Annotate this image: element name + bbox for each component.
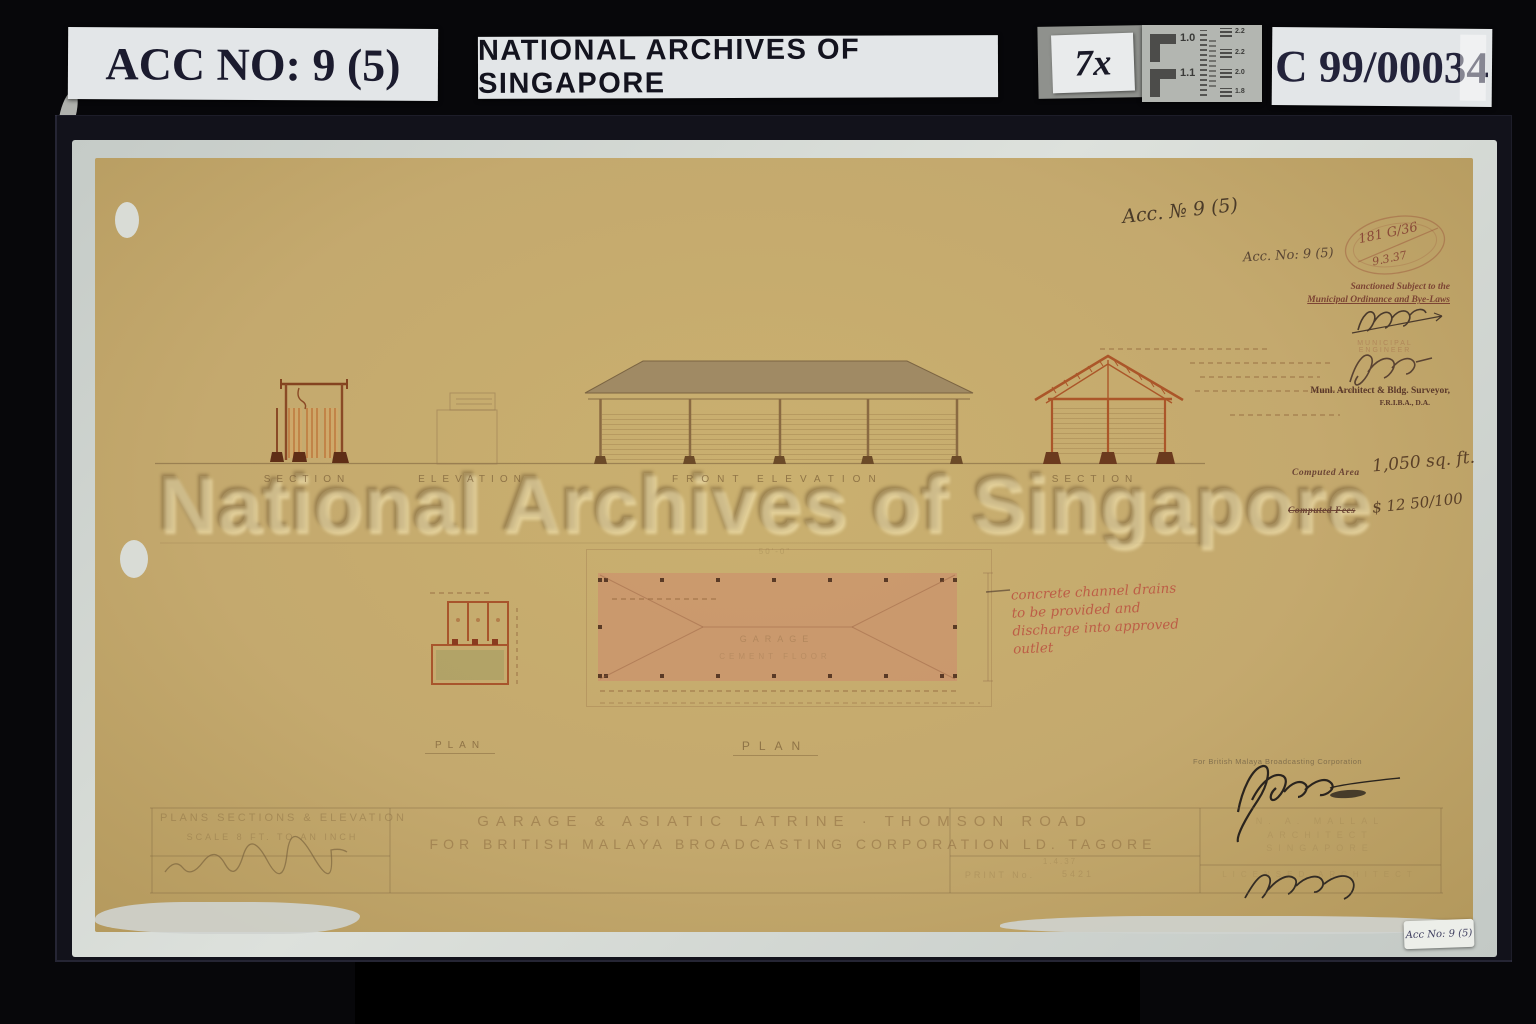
garage-section-linework [1035, 356, 1183, 464]
titleblock-print-number: 5421 [1048, 869, 1108, 879]
titleblock-date: 1.4.37 [1020, 857, 1100, 866]
garage-elevation-linework [585, 361, 973, 464]
computed-fees-label: Computed Fees [1288, 506, 1355, 516]
titleblock-drawing-type: PLANS SECTIONS & ELEVATION [160, 812, 385, 824]
surveyor-title: Munl. Architect & Bldg. Surveyor, [1280, 386, 1450, 396]
label-plan-large: PLAN [733, 739, 818, 756]
label-plan-small: PLAN [425, 740, 495, 754]
label-front-elevation: FRONT ELEVATION [672, 474, 872, 485]
surveyor-signature [1350, 355, 1432, 385]
garage-plan-linework [600, 573, 993, 681]
sanction-stamp: Sanctioned Subject to the Municipal Ordi… [1278, 281, 1450, 307]
titleblock-title-line2: FOR BRITISH MALAYA BROADCASTING CORPORAT… [398, 836, 1188, 852]
surveyor-credentials: F.R.I.B.A., D.A. [1330, 398, 1430, 407]
acc-number-sticker: Acc No: 9 (5) [1404, 919, 1475, 949]
latrine-plan-linework [432, 602, 508, 684]
municipal-engineer-stamp: MUNICIPAL ENGINEER [1330, 340, 1440, 354]
titleblock-architect-city: SINGAPORE [1210, 843, 1430, 853]
sticker-text: Acc No: 9 (5) [1406, 927, 1473, 940]
titleblock-architect-role: ARCHITECT [1210, 830, 1430, 840]
red-note-leader [986, 590, 1010, 592]
titleblock-print-label: PRINT No. [955, 870, 1045, 880]
bottom-black-strip [355, 962, 1140, 1024]
latrine-elevation-linework [437, 393, 497, 464]
broadcasting-stamp: For British Malaya Broadcasting Corporat… [1193, 757, 1362, 766]
titleblock-cursive-squiggle [165, 836, 347, 873]
engineer-signature [1352, 309, 1442, 333]
label-cement-floor: CEMENT FLOOR [700, 652, 850, 661]
sanction-line2: Municipal Ordinance and Bye-Laws [1278, 294, 1450, 307]
red-ink-note: concrete channel drains to be provided a… [1011, 579, 1181, 658]
titleblock-title-line1: GARAGE & ASIATIC LATRINE · THOMSON ROAD [405, 813, 1165, 830]
latrine-section-linework [270, 379, 349, 463]
titleblock-architect-license: LICENSED ARCHITECT [1210, 870, 1430, 879]
label-section-right: SECTION [1045, 474, 1145, 485]
label-elevation: ELEVATION [415, 474, 530, 485]
approval-stamp-oval [1341, 209, 1449, 282]
archives-watermark: National Archives of Singapore [150, 458, 1380, 550]
titleblock-architect-name: N. A. MALLAL [1210, 816, 1430, 826]
label-section-left: SECTION [262, 474, 352, 485]
label-garage: GARAGE [722, 634, 832, 644]
sanction-line1: Sanctioned Subject to the [1278, 281, 1450, 294]
archival-photo-scene: ACC NO: 9 (5) NATIONAL ARCHIVES OF SINGA… [0, 0, 1536, 1024]
computed-area-label: Computed Area [1292, 468, 1360, 478]
titleblock-scale: SCALE 8 FT. TO AN INCH [170, 832, 375, 842]
label-plan-width-dim: 50'-0" [730, 547, 820, 556]
